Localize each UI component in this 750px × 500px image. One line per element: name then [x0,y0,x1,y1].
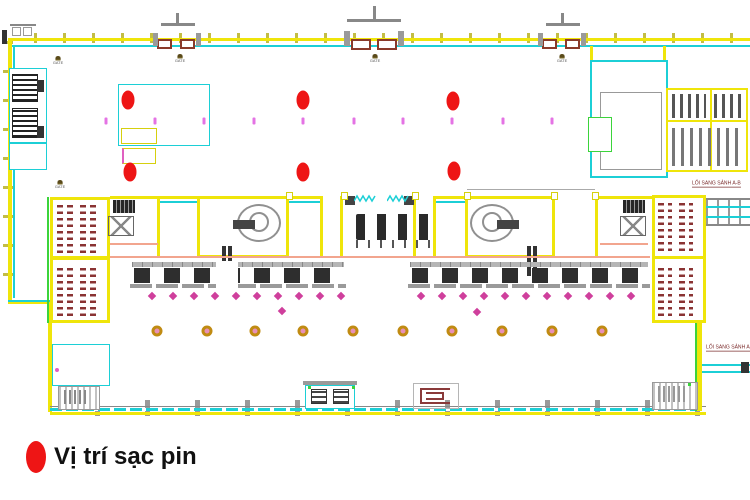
terminal-floor-plan: GATEGATEGATEGATEGATELỐI SANG SẢNH A-BLỐI… [0,0,750,500]
diamond-marker [253,292,261,300]
queue-dash-marker [502,118,505,125]
diamond-marker [148,292,156,300]
diamond-marker [606,292,614,300]
queue-dash-marker [451,118,454,125]
gate-icon [372,54,377,59]
diamond-marker [278,307,286,315]
diamond-marker [627,292,635,300]
gate-label: GATE [55,180,65,189]
diamond-marker [337,292,345,300]
gate-label-text: GATE [370,59,380,63]
queue-dash-marker [105,118,108,125]
diamond-marker [522,292,530,300]
corridor-label: LỐI SANG SẢNH A-B [706,345,750,351]
column-circle-marker [547,326,558,337]
gate-icon [559,54,564,59]
gate-icon [177,54,182,59]
diamond-marker [211,292,219,300]
column-circle-marker [298,326,309,337]
diamond-marker [190,292,198,300]
diamond-marker [438,292,446,300]
charging-location-marker [297,163,310,182]
diamond-marker [473,308,481,316]
diamond-marker [543,292,551,300]
charging-legend-icon [26,441,46,473]
column-circle-marker [597,326,608,337]
queue-dash-marker [402,118,405,125]
diamond-marker [564,292,572,300]
diamond-marker [585,292,593,300]
gate-label: GATE [370,54,380,63]
diamond-marker [232,292,240,300]
queue-dash-marker [302,118,305,125]
column-circle-marker [202,326,213,337]
diamond-marker [459,292,467,300]
diamond-marker [274,292,282,300]
diamond-marker [316,292,324,300]
charging-location-marker [448,162,461,181]
marker-layer: GATEGATEGATEGATEGATELỐI SANG SẢNH A-BLỐI… [0,0,750,500]
gate-label: GATE [557,54,567,63]
diamond-marker [480,292,488,300]
legend: Vị trí sạc pin [26,441,197,473]
legend-label: Vị trí sạc pin [54,443,197,471]
gate-icon [55,56,60,61]
column-circle-marker [497,326,508,337]
diamond-marker [501,292,509,300]
gate-label-text: GATE [557,59,567,63]
queue-dash-marker [253,118,256,125]
gate-label: GATE [175,54,185,63]
column-circle-marker [398,326,409,337]
charging-location-marker [122,91,135,110]
diamond-marker [169,292,177,300]
gate-label-text: GATE [53,61,63,65]
gate-icon [57,180,62,185]
gate-label-text: GATE [55,185,65,189]
column-circle-marker [447,326,458,337]
charging-location-marker [447,92,460,111]
charging-location-marker [297,91,310,110]
queue-dash-marker [154,118,157,125]
queue-dash-marker [551,118,554,125]
column-circle-marker [152,326,163,337]
column-circle-marker [250,326,261,337]
gate-label: GATE [53,56,63,65]
queue-dash-marker [203,118,206,125]
queue-dash-marker [353,118,356,125]
column-circle-marker [348,326,359,337]
diamond-marker [295,292,303,300]
diamond-marker [417,292,425,300]
charging-location-marker [124,163,137,182]
gate-label-text: GATE [175,59,185,63]
corridor-label: LỐI SANG SẢNH A-B [692,181,741,187]
